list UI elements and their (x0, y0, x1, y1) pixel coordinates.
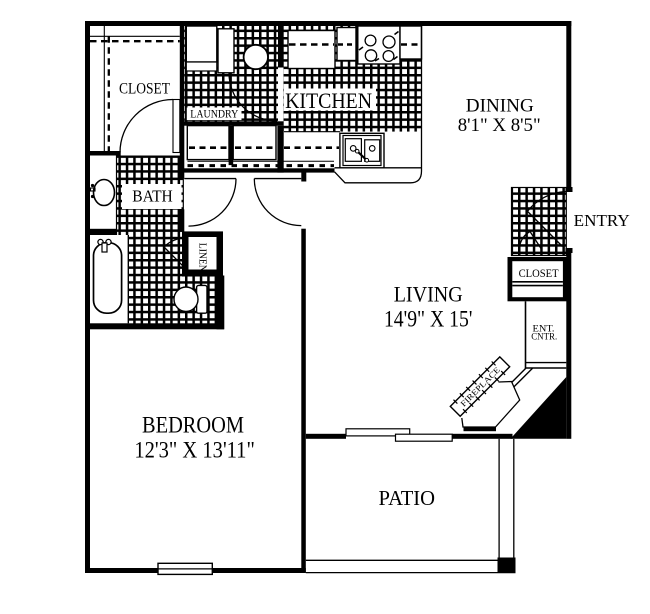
svg-text:8'1" X 8'5": 8'1" X 8'5" (458, 115, 541, 136)
svg-text:KITCHEN: KITCHEN (285, 88, 372, 113)
svg-text:PATIO: PATIO (379, 486, 436, 510)
svg-text:LIVING: LIVING (394, 282, 463, 307)
svg-text:12'3" X 13'11": 12'3" X 13'11" (134, 438, 255, 463)
svg-text:BEDROOM: BEDROOM (142, 413, 244, 438)
svg-text:LINEN: LINEN (196, 243, 207, 272)
svg-text:BATH: BATH (132, 186, 173, 205)
svg-text:ENTRY: ENTRY (574, 211, 630, 230)
svg-text:CNTR.: CNTR. (531, 333, 557, 343)
svg-text:CLOSET: CLOSET (119, 79, 170, 97)
svg-text:LAUNDRY: LAUNDRY (190, 107, 238, 121)
svg-text:CLOSET: CLOSET (519, 268, 559, 280)
svg-text:DINING: DINING (466, 96, 534, 117)
svg-text:14'9" X 15': 14'9" X 15' (384, 306, 473, 331)
